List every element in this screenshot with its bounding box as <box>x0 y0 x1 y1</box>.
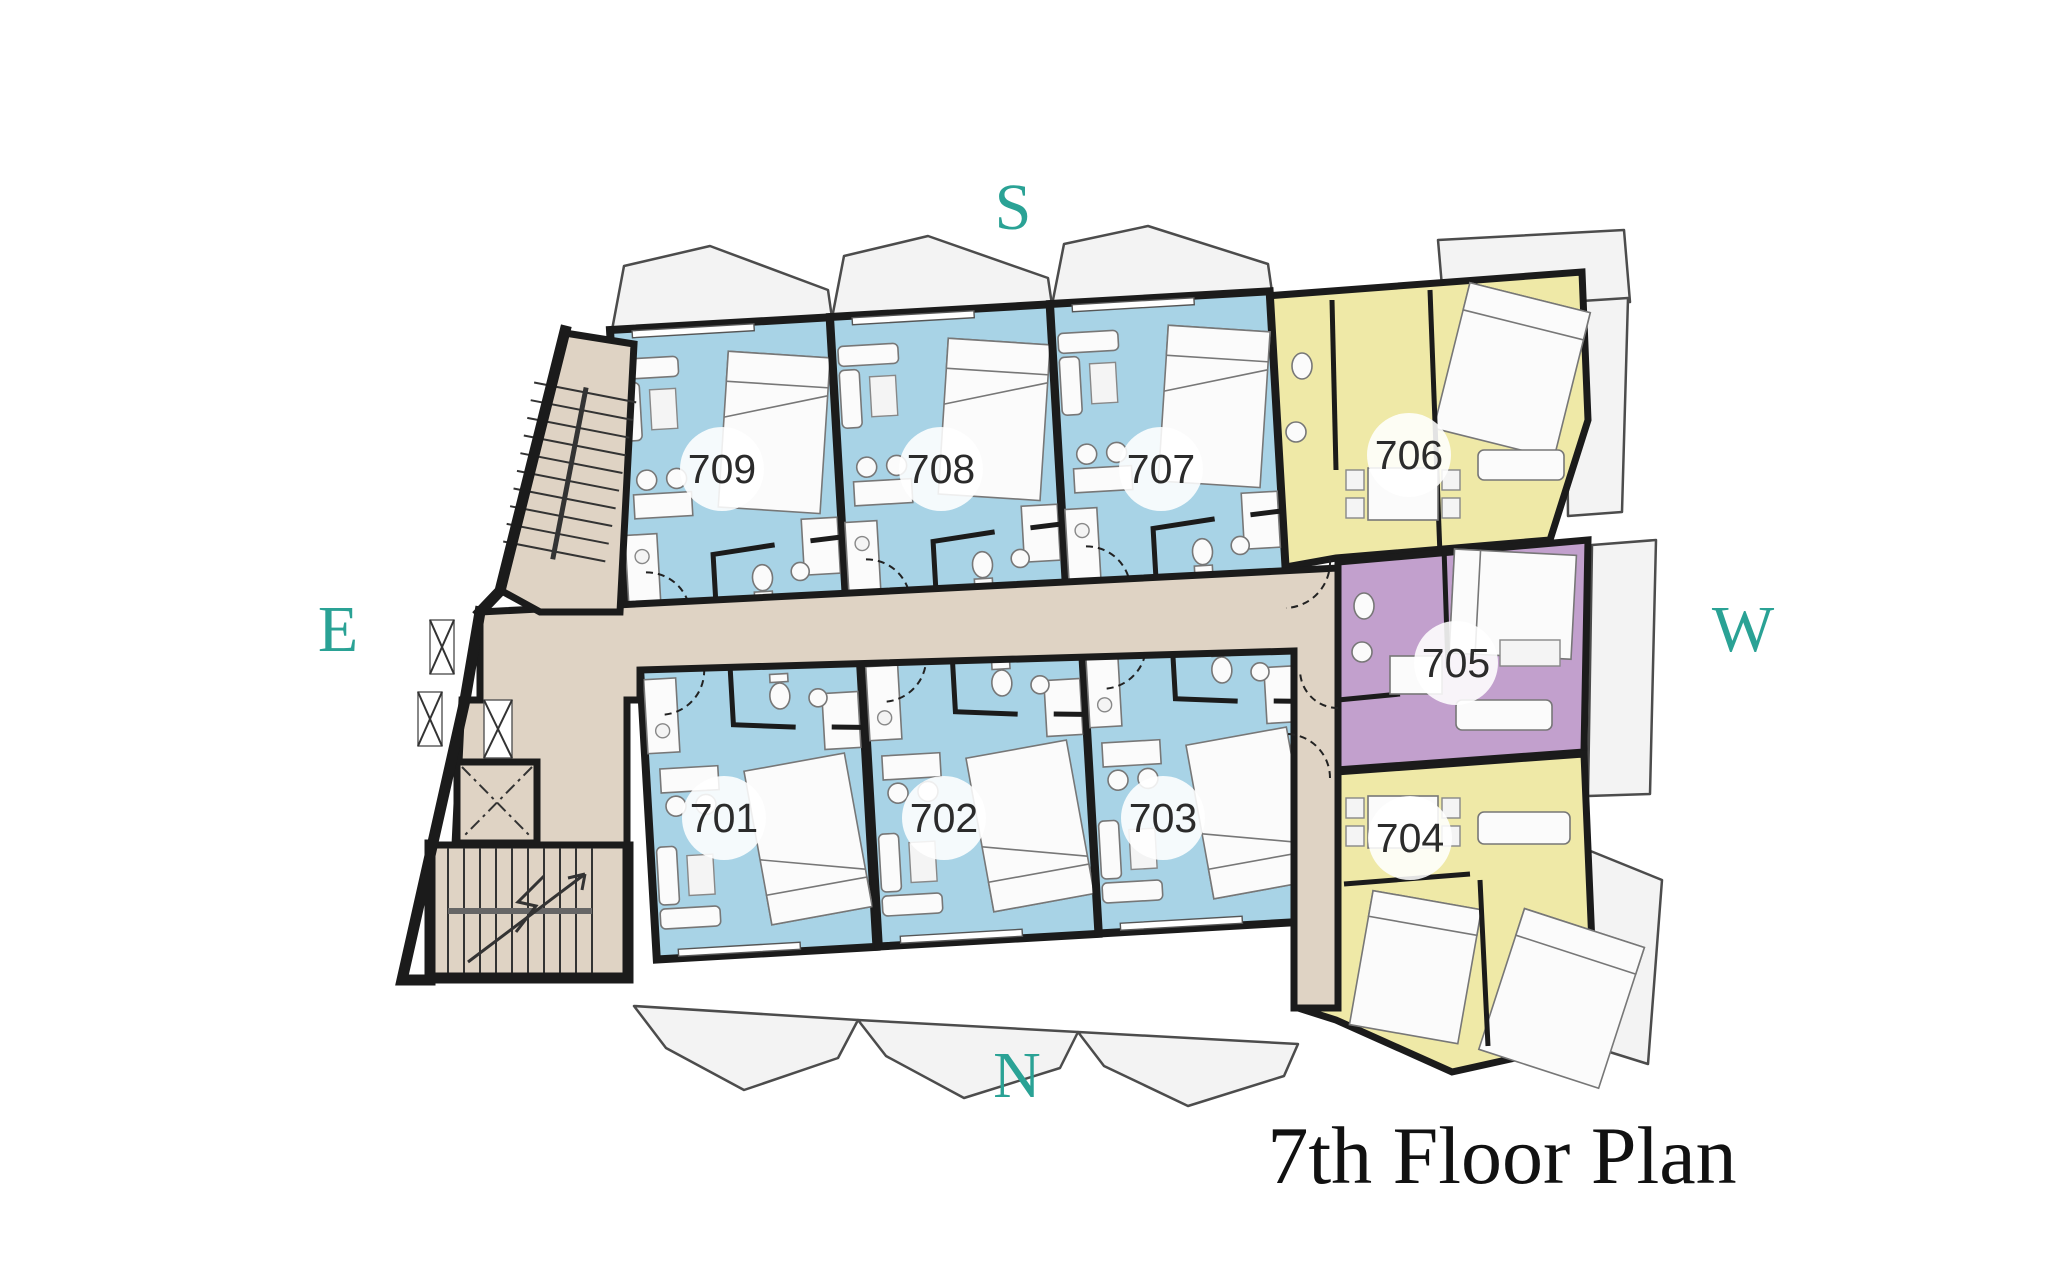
svg-text:708: 708 <box>907 446 975 492</box>
chair <box>1442 498 1460 518</box>
room-label-704: 704 <box>1368 796 1452 880</box>
bed <box>1349 891 1481 1044</box>
chair <box>1346 798 1364 818</box>
unit-702 <box>862 642 1098 946</box>
svg-text:703: 703 <box>1129 795 1197 841</box>
basin <box>1352 642 1372 662</box>
sofa <box>1456 700 1552 730</box>
compass-west: W <box>1712 593 1775 666</box>
room-label-701: 701 <box>682 776 766 860</box>
room-label-703: 703 <box>1121 776 1205 860</box>
compass-east: E <box>318 593 358 666</box>
svg-text:706: 706 <box>1375 432 1443 478</box>
page-title: 7th Floor Plan <box>1267 1110 1736 1201</box>
chair <box>1346 826 1364 846</box>
room-label-707: 707 <box>1119 427 1203 511</box>
tv-console <box>1500 640 1560 666</box>
toilet <box>1354 593 1374 619</box>
svg-text:707: 707 <box>1127 446 1195 492</box>
room-label-706: 706 <box>1367 413 1451 497</box>
chair <box>1346 470 1364 490</box>
unit-703 <box>1082 629 1318 933</box>
room-label-702: 702 <box>902 776 986 860</box>
floor-plan-page: 709 708 707 706 705 704 703 702 701 S E … <box>0 0 2048 1263</box>
unit-704-area <box>1298 754 1644 1088</box>
toilet <box>1292 353 1312 379</box>
chair <box>1346 498 1364 518</box>
sofa <box>1478 450 1564 480</box>
svg-text:702: 702 <box>910 795 978 841</box>
room-label-708: 708 <box>899 427 983 511</box>
basin <box>1286 422 1306 442</box>
room-label-709: 709 <box>680 427 764 511</box>
svg-text:704: 704 <box>1376 815 1444 861</box>
compass-south: S <box>995 171 1032 244</box>
svg-text:701: 701 <box>690 795 758 841</box>
stair-block-upper <box>500 333 637 612</box>
compass-north: N <box>993 1039 1041 1112</box>
floor-plan-canvas: 709 708 707 706 705 704 703 702 701 S E … <box>0 0 2048 1263</box>
elevator <box>457 762 537 843</box>
room-label-705: 705 <box>1414 621 1498 705</box>
svg-text:709: 709 <box>688 446 756 492</box>
sofa <box>1478 812 1570 844</box>
svg-text:705: 705 <box>1422 640 1490 686</box>
stairwell-lower <box>430 845 628 977</box>
